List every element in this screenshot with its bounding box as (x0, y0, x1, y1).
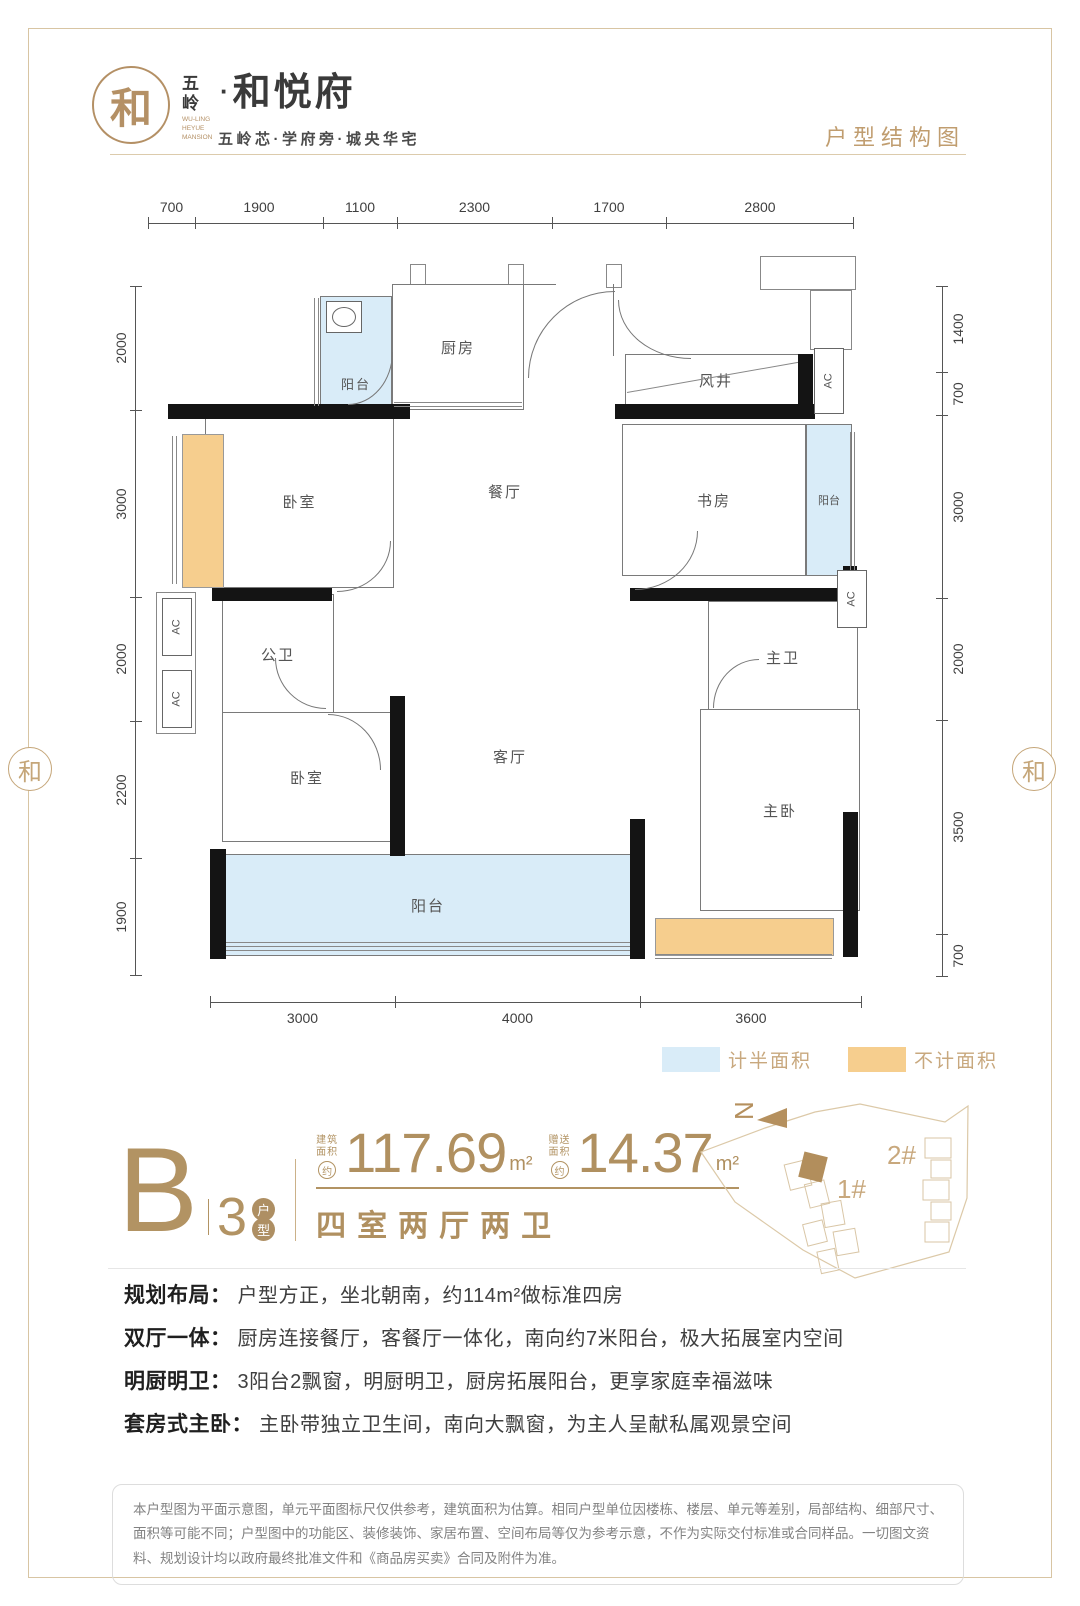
floorplan: 700 1900 1100 2300 1700 2800 2000 3000 2… (110, 196, 970, 1044)
bay-window-south (655, 918, 834, 956)
shaft-outline (760, 256, 856, 290)
brand-dot: · (220, 76, 229, 107)
room-living: 客厅 (410, 696, 610, 816)
site-boundary (701, 1104, 968, 1278)
dim-chain-right: 1400 700 3000 2000 3500 700 (936, 286, 966, 977)
room-label: 厨房 (441, 337, 475, 358)
wall (615, 404, 815, 419)
window (394, 402, 522, 408)
brand-prefix-char1: 五 (182, 74, 216, 94)
room-master-bedroom: 主卧 (700, 709, 860, 911)
feature-item: 双厅一体：厨房连接餐厅，客餐厅一体化，南向约7米阳台，极大拓展室内空间 (124, 1325, 864, 1353)
badge-char-bottom: 型 (252, 1218, 275, 1241)
room-label: 主卫 (766, 647, 800, 668)
room-label: 主卧 (763, 800, 797, 821)
room-label: 书房 (697, 490, 731, 511)
door-arc-entrance (528, 291, 615, 378)
unit-number: 3 (217, 1193, 247, 1242)
door-arc-study (635, 531, 698, 590)
porch-lintel (522, 284, 556, 285)
room-dining: 餐厅 (410, 446, 600, 536)
unit-divider (295, 1159, 296, 1241)
building1-label: 1# (837, 1174, 866, 1204)
brand-name: 和悦府 (233, 74, 356, 112)
site-plan: N 1# 2# (695, 1080, 975, 1293)
brand-prefix: 五 岭 (182, 74, 216, 113)
wall (798, 354, 813, 419)
header-divider (110, 154, 966, 155)
building2-label: 2# (887, 1140, 916, 1170)
brand-logo-icon: 和 (92, 66, 170, 144)
room-label: 餐厅 (488, 481, 522, 502)
room-balcony-east: 阳台 (806, 424, 852, 576)
room-kitchen: 厨房 (392, 284, 524, 410)
compass-north-icon: N (729, 1101, 787, 1128)
built-area-value: 117.69 (345, 1126, 506, 1179)
seal-watermark-icon: 和 (1012, 747, 1056, 791)
room-label: 阳台 (411, 895, 445, 916)
gift-area-value: 14.37 (578, 1126, 713, 1179)
built-area-caption: 建筑面积 约 (316, 1135, 338, 1179)
unit-separator (208, 1199, 209, 1235)
window (655, 954, 832, 962)
feature-item: 规划布局：户型方正，坐北朝南，约114m²做标准四房 (124, 1282, 864, 1310)
wall (212, 588, 332, 601)
approx-circle-icon: 约 (551, 1161, 569, 1179)
room-wind-shaft: 风井 (625, 354, 807, 406)
washer-icon (326, 301, 362, 333)
wall (630, 819, 645, 959)
legend: 计半面积 不计面积 (662, 1046, 998, 1073)
section-divider (108, 1268, 966, 1269)
brand-prefix-char2: 岭 (182, 94, 216, 114)
feature-item: 明厨明卫：3阳台2飘窗，明厨明卫，厨房拓展阳台，更享家庭幸福滋味 (124, 1368, 864, 1396)
room-label: 风井 (699, 370, 733, 391)
gift-area-caption: 赠送面积 约 (549, 1135, 571, 1179)
unit-underline (316, 1187, 739, 1189)
svg-text:N: N (729, 1101, 759, 1120)
unit-letter: B (118, 1135, 198, 1245)
approx-circle-icon: 约 (318, 1161, 336, 1179)
wall (630, 588, 858, 601)
feature-list: 规划布局：户型方正，坐北朝南，约114m²做标准四房 双厅一体：厨房连接餐厅，客… (124, 1282, 864, 1454)
feature-item: 套房式主卧：主卧带独立卫生间，南向大飘窗，为主人呈献私属观景空间 (124, 1411, 864, 1439)
legend-excluded-area-swatch (848, 1047, 906, 1072)
ac-unit-icon: AC (837, 570, 867, 628)
room-label: 卧室 (290, 767, 324, 788)
bay-window-west (182, 434, 224, 588)
dim-chain-top: 700 1900 1100 2300 1700 2800 (148, 198, 854, 224)
wall (210, 849, 226, 959)
highlighted-building (798, 1151, 828, 1182)
window (850, 432, 858, 572)
wall (168, 404, 410, 419)
window (172, 436, 180, 584)
wall (390, 696, 405, 856)
pillar (606, 264, 622, 288)
disclaimer-box: 本户型图为平面示意图，单元平面图标尺仅供参考，建筑面积为估算。相同户型单位因楼栋… (112, 1484, 964, 1585)
legend-half-area-label: 计半面积 (728, 1046, 812, 1073)
seal-watermark-icon: 和 (8, 747, 52, 791)
legend-excluded-area-label: 不计面积 (914, 1046, 998, 1073)
ac-unit-icon: AC (814, 348, 844, 414)
ac-unit-icon: AC (162, 670, 192, 728)
door-arc-hall (618, 300, 691, 359)
room-label: 客厅 (493, 746, 527, 767)
ac-unit-icon: AC (162, 598, 192, 656)
brand-tagline: 五岭芯·学府旁·城央华宅 (218, 128, 420, 149)
built-area-unit: m² (509, 1153, 532, 1179)
dim-chain-bottom: 3000 4000 3600 (210, 996, 862, 1022)
unit-layout-desc: 四室两厅两卫 (316, 1201, 739, 1245)
shaft-outline (810, 290, 852, 350)
unit-type-badge: 户 型 (252, 1198, 275, 1241)
page-title: 户型结构图 (825, 120, 965, 152)
window (314, 298, 320, 406)
legend-half-area-swatch (662, 1047, 720, 1072)
room-balcony-south: 阳台 (222, 854, 634, 956)
wall (843, 812, 858, 957)
dim-chain-left: 2000 3000 2000 2200 1900 (112, 286, 142, 976)
brand-english: WU-LING HEYUE MANSION (182, 116, 216, 142)
room-label: 卧室 (282, 491, 316, 512)
balcony-railing (226, 942, 630, 951)
unit-info: B 3 户 型 建筑面积 约 117.69 m² 赠送面积 约 14.37 m²… (118, 1126, 739, 1245)
room-label: 阳台 (818, 492, 840, 508)
